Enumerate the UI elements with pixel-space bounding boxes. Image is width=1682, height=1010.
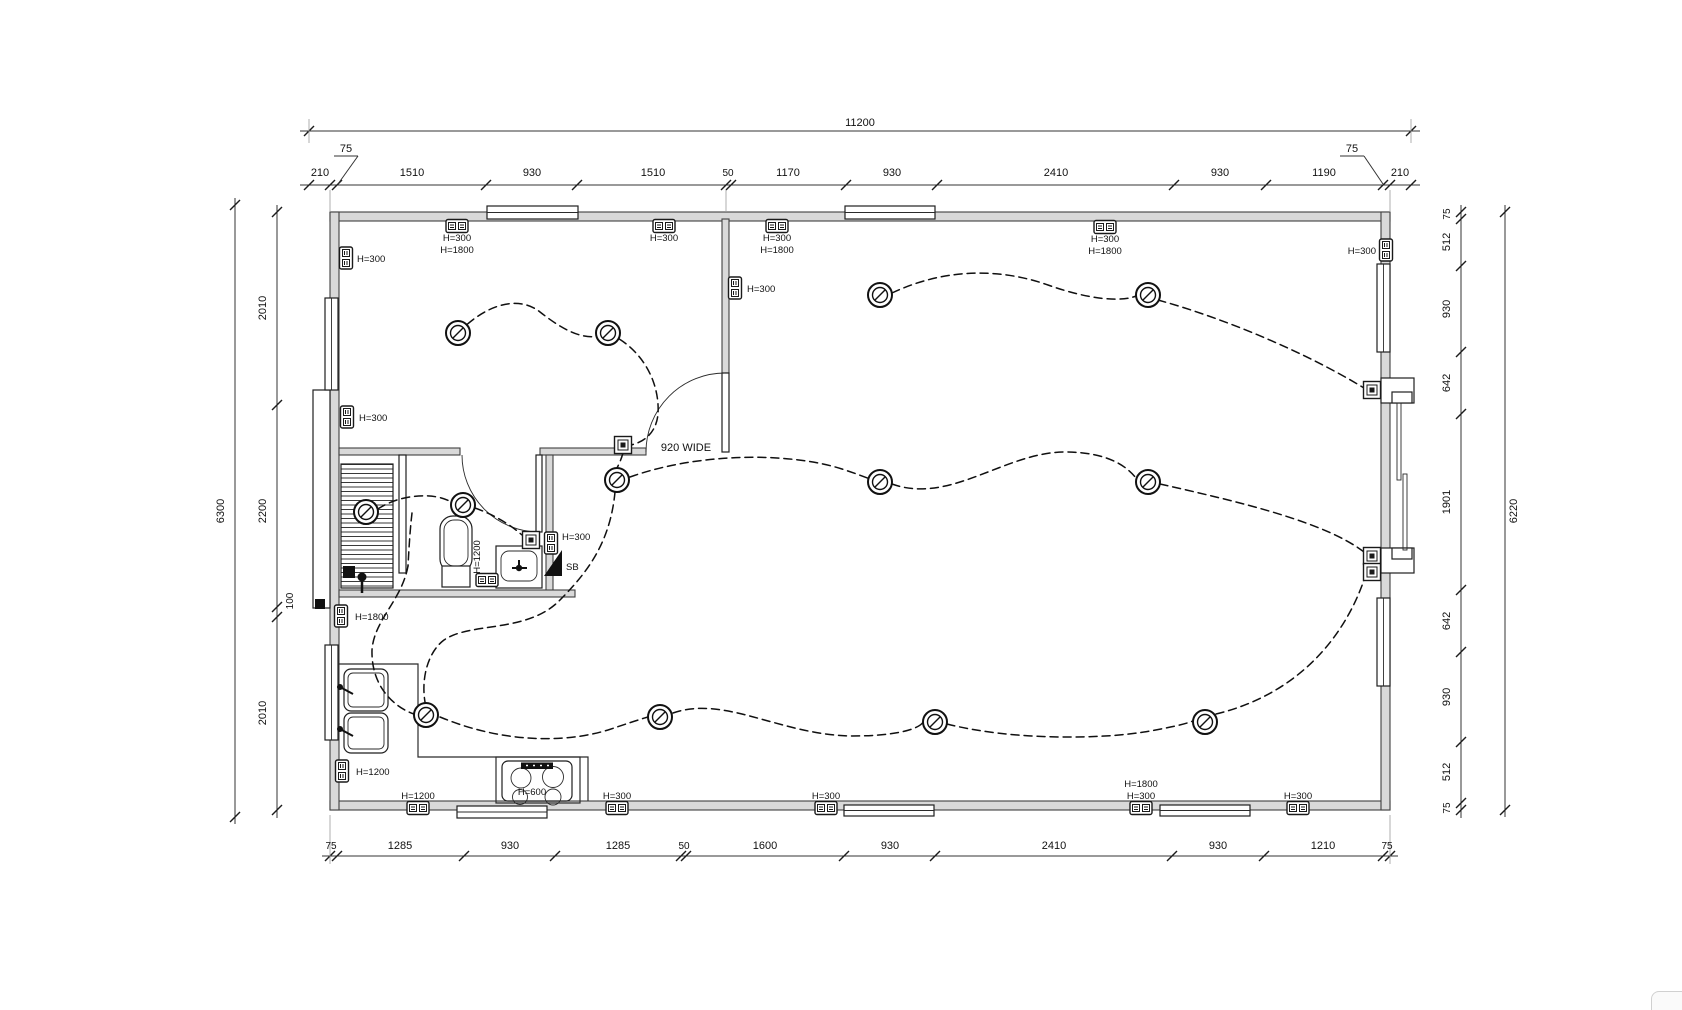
outlet bbox=[815, 802, 837, 815]
door-leaf bbox=[536, 455, 542, 532]
service-duct bbox=[313, 390, 330, 608]
light-fitting bbox=[446, 321, 470, 345]
dim-label: 930 bbox=[883, 167, 901, 179]
switch bbox=[523, 532, 540, 549]
dim-label: 512 bbox=[1441, 763, 1453, 781]
dim-label: 2010 bbox=[257, 296, 269, 320]
switch bbox=[1364, 548, 1381, 565]
light-fitting bbox=[923, 710, 947, 734]
dim-label: 2010 bbox=[257, 701, 269, 725]
outlet-label: H=1200 bbox=[356, 767, 390, 778]
kitchen-sink bbox=[337, 669, 388, 753]
dim-label: 930 bbox=[1211, 167, 1229, 179]
outlet-label: H=1200 bbox=[472, 540, 483, 574]
sliding-door bbox=[1397, 403, 1401, 480]
dim-label: 75 bbox=[1442, 802, 1453, 814]
dim-label: 75 bbox=[340, 143, 352, 155]
dimension-right: 75 512 930 642 1901 642 930 512 75 6220 bbox=[1441, 205, 1520, 818]
outlet bbox=[341, 406, 354, 428]
cooktop-label: H=600 bbox=[518, 787, 546, 798]
outlet bbox=[1380, 239, 1393, 261]
outlet bbox=[476, 574, 498, 587]
outlet-label: H=1800 bbox=[355, 612, 389, 623]
light-fitting bbox=[414, 703, 438, 727]
dimension-bottom-row: 75 1285 930 1285 50 1600 930 2410 930 12… bbox=[322, 815, 1398, 864]
light-fitting bbox=[1136, 470, 1160, 494]
outlet-label: H=1800 bbox=[440, 245, 474, 256]
outlet-label: H=1200 bbox=[401, 791, 435, 802]
light-fitting bbox=[1193, 710, 1217, 734]
light-fitting bbox=[1136, 283, 1160, 307]
outlet bbox=[1130, 802, 1152, 815]
light-fitting bbox=[596, 321, 620, 345]
outlet bbox=[407, 802, 429, 815]
light-fitting bbox=[868, 470, 892, 494]
outlet-label: H=300 bbox=[812, 791, 840, 802]
window bbox=[1160, 805, 1250, 816]
window bbox=[325, 298, 338, 390]
dim-label: 1170 bbox=[776, 167, 800, 179]
sliding-door bbox=[1403, 474, 1407, 550]
dimension-top-overall: 11200 bbox=[300, 117, 1420, 143]
outlet bbox=[336, 760, 349, 782]
dim-label: 2410 bbox=[1042, 840, 1066, 852]
window bbox=[1377, 598, 1390, 686]
window bbox=[845, 206, 935, 219]
dim-label: 2410 bbox=[1044, 167, 1068, 179]
outlet bbox=[446, 220, 468, 233]
door-leaf bbox=[722, 373, 729, 452]
dim-label: 930 bbox=[1441, 688, 1453, 706]
dim-label: 1285 bbox=[606, 840, 630, 852]
dim-label: 75 bbox=[1346, 143, 1358, 155]
dim-label: 1190 bbox=[1312, 167, 1336, 179]
dim-label: 930 bbox=[523, 167, 541, 179]
dim-label: 75 bbox=[1381, 841, 1393, 852]
shower-head bbox=[343, 566, 355, 578]
dim-label: 930 bbox=[1441, 300, 1453, 318]
light-fitting bbox=[451, 493, 475, 517]
floor-plan-canvas: 920 WIDE bbox=[0, 0, 1682, 1010]
dim-label: 1510 bbox=[400, 167, 424, 179]
outlet-label: H=1800 bbox=[760, 245, 794, 256]
dim-label: 210 bbox=[311, 167, 329, 179]
dim-label: 642 bbox=[1441, 612, 1453, 630]
dim-label: 512 bbox=[1441, 233, 1453, 251]
window bbox=[325, 645, 338, 740]
light-switches bbox=[523, 382, 1381, 581]
outlet bbox=[606, 802, 628, 815]
outlet bbox=[545, 532, 558, 554]
dim-label: 75 bbox=[1442, 208, 1453, 220]
outlet bbox=[1287, 802, 1309, 815]
dim-label: 1510 bbox=[641, 167, 665, 179]
outlet-label: H=300 bbox=[1284, 791, 1312, 802]
outlet-label: H=300 bbox=[359, 413, 387, 424]
floor-plan-svg: 920 WIDE bbox=[0, 0, 1682, 1010]
outlet-label: H=300 bbox=[443, 233, 471, 244]
window bbox=[487, 206, 578, 219]
dim-label: 930 bbox=[1209, 840, 1227, 852]
outlet bbox=[653, 220, 675, 233]
windows bbox=[325, 206, 1390, 818]
dim-label: 1901 bbox=[1441, 490, 1453, 514]
dim-label: 75 bbox=[325, 841, 337, 852]
dim-label: 6300 bbox=[215, 499, 227, 523]
shower-screen bbox=[399, 455, 406, 573]
outlet-label: H=1800 bbox=[1088, 246, 1122, 257]
dimension-top-row: 210 75 1510 930 1510 50 1170 930 2410 93… bbox=[300, 143, 1420, 212]
outlet-label: H=1800 bbox=[1124, 779, 1158, 790]
viewport-corner-widget[interactable] bbox=[1651, 991, 1682, 1010]
dim-label: 1210 bbox=[1311, 840, 1335, 852]
outlet bbox=[340, 247, 353, 269]
dimension-left: 6300 2010 2200 100 2010 bbox=[215, 198, 296, 824]
window bbox=[844, 805, 934, 816]
switch bbox=[1364, 564, 1381, 581]
dim-label: 210 bbox=[1391, 167, 1409, 179]
outlet bbox=[1094, 221, 1116, 234]
dim-label: 100 bbox=[285, 592, 296, 609]
outlet-label: H=300 bbox=[357, 254, 385, 265]
switch bbox=[1364, 382, 1381, 399]
outlet bbox=[335, 605, 348, 627]
window bbox=[457, 806, 547, 818]
outlet-label: H=300 bbox=[650, 233, 678, 244]
dim-label: 50 bbox=[678, 841, 690, 852]
toilet bbox=[440, 516, 472, 587]
dim-label: 642 bbox=[1441, 374, 1453, 392]
outlet-label: H=300 bbox=[747, 284, 775, 295]
window bbox=[1377, 264, 1390, 352]
vanity-basin bbox=[496, 546, 542, 588]
switch bbox=[615, 437, 632, 454]
switchboard-label: SB bbox=[566, 562, 579, 573]
dim-label: 50 bbox=[722, 168, 734, 179]
outlet-label: H=300 bbox=[1127, 791, 1155, 802]
outlet-label: H=300 bbox=[763, 233, 791, 244]
light-fitting bbox=[868, 283, 892, 307]
kitchen-fixtures bbox=[337, 664, 588, 805]
dim-label: 930 bbox=[881, 840, 899, 852]
outlet-label: H=300 bbox=[562, 532, 590, 543]
light-fitting bbox=[605, 468, 629, 492]
dim-label: 11200 bbox=[845, 117, 875, 129]
light-fitting bbox=[354, 500, 378, 524]
dim-label: 930 bbox=[501, 840, 519, 852]
outlet-label: H=300 bbox=[603, 791, 631, 802]
outlet bbox=[766, 220, 788, 233]
light-fitting bbox=[648, 705, 672, 729]
outlet bbox=[729, 277, 742, 299]
outlet-label: H=300 bbox=[1091, 234, 1119, 245]
dim-label: 1285 bbox=[388, 840, 412, 852]
dim-label: 6220 bbox=[1508, 499, 1520, 523]
dim-label: 1600 bbox=[753, 840, 777, 852]
wiring bbox=[372, 273, 1366, 739]
door-width-label: 920 WIDE bbox=[661, 442, 711, 454]
floor-waste bbox=[315, 599, 325, 609]
outlet-label: H=300 bbox=[1348, 246, 1376, 257]
dim-label: 2200 bbox=[257, 499, 269, 523]
